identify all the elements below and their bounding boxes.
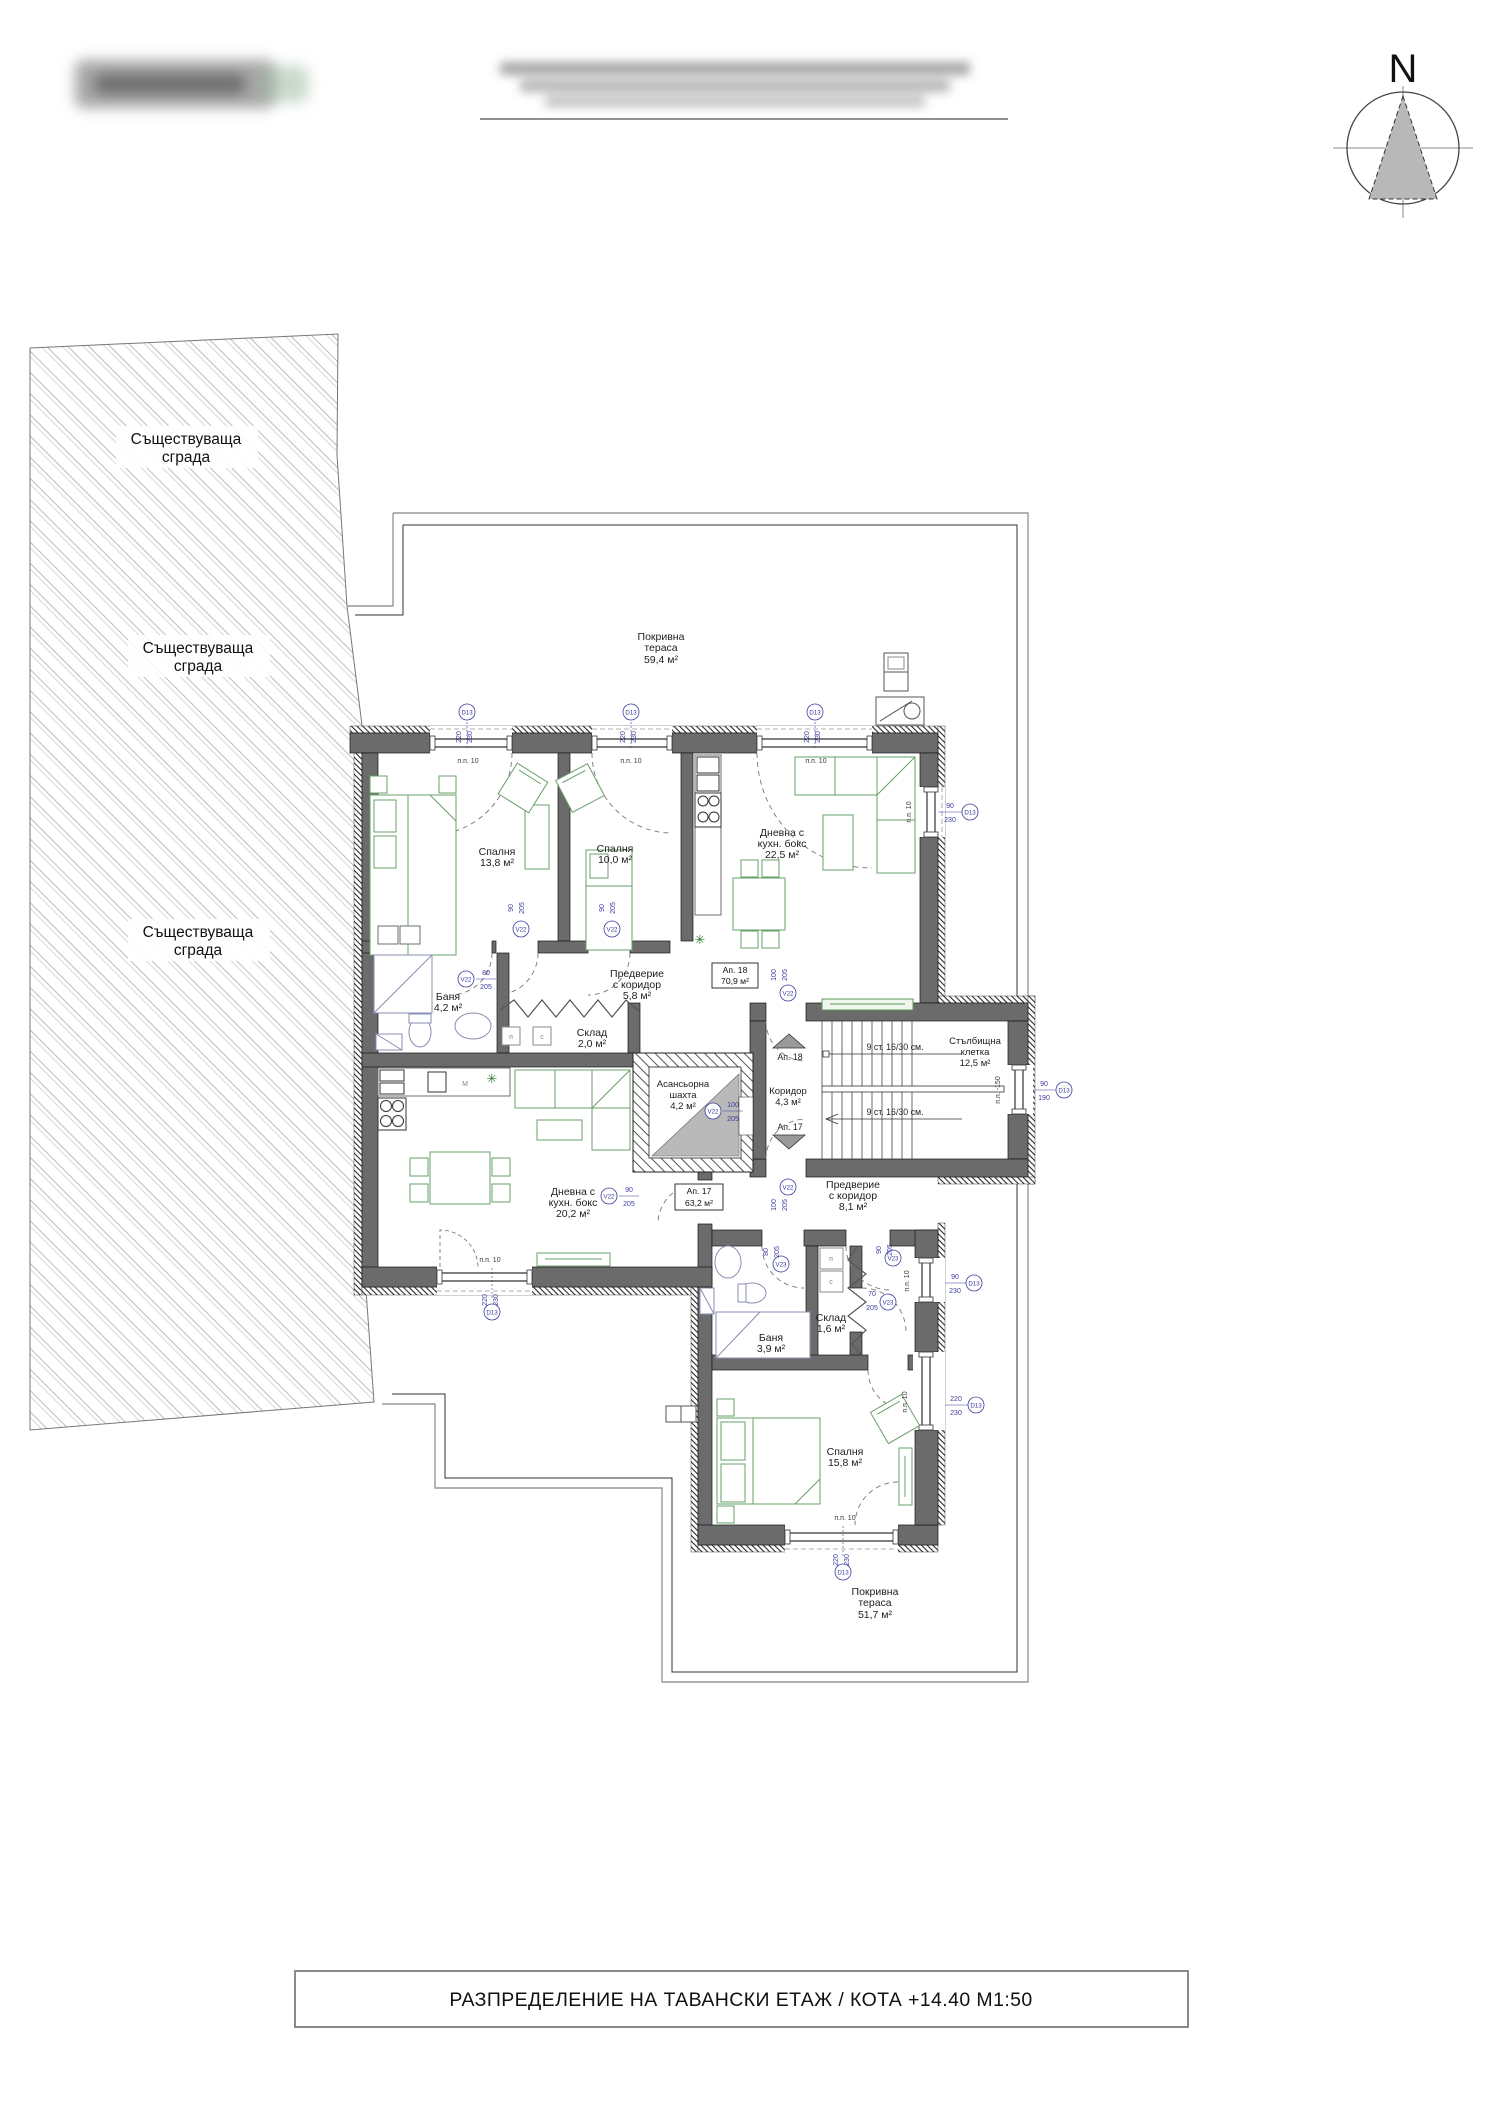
title-block: РАЗПРЕДЕЛЕНИЕ НА ТАВАНСКИ ЕТАЖ / КОТА +1… [295,1971,1188,2027]
label-hall-8-1: Предверие с коридор 8,1 м² [826,1179,880,1213]
kitchen-22-5 [695,755,721,915]
svg-text:100: 100 [771,969,778,981]
wardrobe-zigzag-5-8 [500,1000,640,1017]
stair-run-label-2: 9 ст. 16/30 см. [866,1107,923,1117]
svg-text:220: 220 [620,731,627,743]
svg-text:V22: V22 [460,977,472,984]
label-terrace-bottom: Покривна тераса 51,7 м² [852,1586,899,1621]
svg-text:90: 90 [1040,1081,1048,1088]
svg-text:D13: D13 [625,710,637,717]
svg-text:205: 205 [782,969,789,981]
svg-text:8,1 м²: 8,1 м² [839,1201,868,1213]
sheet-title: РАЗПРЕДЕЛЕНИЕ НА ТАВАНСКИ ЕТАЖ / КОТА +1… [449,1989,1032,2011]
svg-text:90: 90 [876,1246,883,1254]
washer-letter: п [509,1034,513,1041]
marker-door-storage-1-6: 70 205 V23 [866,1291,896,1312]
washer-letter-2: п [829,1256,833,1263]
svg-text:V23: V23 [775,1262,787,1269]
dryer-letter-2: с [829,1279,833,1286]
svg-text:Съществуваща: Съществуваща [143,924,254,941]
apartment-tag-ap18: Ап. 18 70,9 м² [712,963,758,988]
floor-plan-drawing: N Съществуваща сграда Съществуваща сград… [0,0,1500,2123]
svg-text:п.п. 10: п.п. 10 [457,758,478,765]
marker-door-bath-3-9: V23 80 205 [763,1246,789,1272]
svg-text:сграда: сграда [174,942,223,959]
elevator-shaft [633,1053,753,1172]
svg-text:205: 205 [610,902,617,914]
existing-building-label-1: Съществуваща сграда [116,426,258,468]
svg-text:клетка: клетка [961,1047,990,1058]
marker-door-bath-4-2: V22 80 205 [458,970,496,991]
svg-text:220: 220 [804,731,811,743]
label-storage-1-6: Склад 1,6 м² [816,1312,846,1335]
svg-text:51,7 м²: 51,7 м² [858,1609,893,1621]
svg-text:220: 220 [456,731,463,743]
microwave-letter: М [462,1081,468,1088]
svg-text:4,2 м²: 4,2 м² [670,1101,696,1112]
north-arrow-icon: N [1333,47,1473,218]
svg-text:4,3 м²: 4,3 м² [775,1097,801,1108]
coffee-table-22-5 [823,815,853,870]
svg-text:80: 80 [763,1248,770,1256]
svg-text:п.п. 10: п.п. 10 [904,1270,911,1291]
plant-icon-2: ✳ [487,1071,498,1086]
svg-text:22,5 м²: 22,5 м² [765,849,800,861]
svg-text:12,5 м²: 12,5 м² [960,1058,991,1069]
floor-plan-sheet: N Съществуваща сграда Съществуваща сград… [0,0,1500,2123]
svg-text:59,4 м²: 59,4 м² [644,654,679,666]
svg-text:п.п. -150: п.п. -150 [995,1076,1002,1104]
svg-text:п.п. 10: п.п. 10 [479,1257,500,1264]
svg-text:2,0 м²: 2,0 м² [578,1038,607,1050]
label-bath-4-2: Баня 4,2 м² [434,991,463,1014]
svg-text:п.п. 10: п.п. 10 [805,758,826,765]
window-bedroom-15-8 [785,1523,898,1554]
svg-text:сграда: сграда [174,658,223,675]
sink-3-9 [715,1246,741,1278]
svg-text:230: 230 [467,731,474,743]
armchair-15-8 [870,1394,919,1443]
bed-double-15-8 [717,1399,820,1523]
sink-4-2 [455,1013,491,1039]
label-bedroom-10-0: Спалня 10,0 м² [597,843,634,866]
label-hall-5-8: Предверие с коридор 5,8 м² [610,968,664,1002]
label-storage-2-0: Склад 2,0 м² [577,1027,607,1050]
marker-door-living-20-2: V22 90 205 [601,1187,639,1208]
svg-text:Коридор: Коридор [769,1086,807,1097]
svg-text:D13: D13 [970,1403,982,1410]
svg-text:20,2 м²: 20,2 м² [556,1208,591,1220]
svg-text:D13: D13 [461,710,473,717]
svg-text:Съществуваща: Съществуваща [131,431,242,448]
label-corridor: Коридор 4,3 м² [769,1086,807,1108]
svg-text:V22: V22 [782,1185,794,1192]
shower-4-2 [374,955,432,1013]
svg-text:тераса: тераса [644,642,677,654]
label-living-20-2: Дневна с кухн. бокс 20,2 м² [549,1186,598,1220]
blurred-address-block [500,62,970,107]
svg-text:Съществуваща: Съществуваща [143,640,254,657]
svg-text:D13: D13 [486,1310,498,1317]
svg-text:230: 230 [950,1410,962,1417]
svg-text:100: 100 [727,1102,739,1109]
existing-building-label-2: Съществуваща сграда [128,635,270,677]
toilet-3-9 [738,1283,766,1303]
svg-text:220: 220 [482,1294,489,1306]
svg-text:D13: D13 [837,1570,849,1577]
dining-table-22-5 [733,860,785,948]
svg-text:90: 90 [946,803,954,810]
svg-text:205: 205 [480,984,492,991]
desk-13-8 [525,805,549,869]
svg-text:205: 205 [887,1244,894,1256]
svg-text:230: 230 [815,731,822,743]
svg-text:205: 205 [519,902,526,914]
marker-door-entry-ap17: V22 100 205 [771,1179,796,1211]
svg-text:шахта: шахта [669,1090,697,1101]
svg-text:Асансьорна: Асансьорна [657,1079,710,1090]
label-bath-3-9: Баня 3,9 м² [757,1332,786,1355]
svg-text:100: 100 [771,1199,778,1211]
svg-text:205: 205 [866,1305,878,1312]
svg-text:V22: V22 [782,991,794,998]
label-living-22-5: Дневна с кухн. бокс 22,5 м² [758,827,807,861]
svg-text:D13: D13 [1058,1088,1070,1095]
svg-text:V22: V22 [603,1194,615,1201]
svg-text:1,6 м²: 1,6 м² [817,1323,846,1335]
svg-text:90: 90 [599,904,606,912]
label-bedroom-15-8: Спалня 15,8 м² [827,1446,864,1469]
svg-text:15,8 м²: 15,8 м² [828,1457,863,1469]
svg-text:V22: V22 [606,927,618,934]
svg-text:230: 230 [631,731,638,743]
svg-text:Стълбищна: Стълбищна [949,1036,1002,1047]
window-stairwell [1006,1065,1033,1114]
svg-text:220: 220 [833,1554,840,1566]
svg-text:70: 70 [868,1291,876,1298]
window-hall-8-1-side [913,1258,945,1302]
label-terrace-top: Покривна тераса 59,4 м² [638,631,685,666]
sofa-corner-22-5 [795,757,915,873]
existing-building-label-3: Съществуваща сграда [128,919,270,961]
stair-direction-up: Ап. 18 [773,1034,805,1062]
marker-window-w5: 90 190 D13 [1033,1081,1072,1102]
svg-text:90: 90 [951,1274,959,1281]
svg-text:4,2 м²: 4,2 м² [434,1002,463,1014]
marker-window-w6: 90 230 D13 [945,1274,982,1295]
svg-text:п.п. 10: п.п. 10 [834,1515,855,1522]
svg-text:D13: D13 [964,810,976,817]
north-letter: N [1389,47,1418,91]
svg-text:п.п. 10: п.п. 10 [902,1391,909,1412]
dryer-letter: с [540,1034,544,1041]
svg-text:70,9 м²: 70,9 м² [721,976,749,986]
svg-text:п.п. 10: п.п. 10 [906,801,913,822]
stair-run-label-1: 9 ст. 16/30 см. [866,1042,923,1052]
label-bedroom-13-8: Спалня 13,8 м² [479,846,516,869]
svg-text:3,9 м²: 3,9 м² [757,1343,786,1355]
stair-direction-down: Ап. 17 [773,1122,805,1149]
svg-text:Ап. 17: Ап. 17 [777,1122,802,1132]
svg-text:тераса: тераса [858,1597,891,1609]
svg-text:V23: V23 [882,1300,894,1307]
svg-text:п.п. 10: п.п. 10 [620,758,641,765]
svg-text:Ап. 18: Ап. 18 [723,965,748,975]
marker-window-w7: 220 230 D13 [945,1396,984,1417]
svg-text:63,2 м²: 63,2 м² [685,1198,713,1208]
marker-door-wing-hall: V23 90 205 [876,1244,901,1266]
marker-door-bedroom-13-8: V22 90 205 [508,902,529,937]
label-stairwell: Стълбищна клетка 12,5 м² [949,1036,1002,1069]
washer-3-9 [700,1288,714,1314]
svg-text:13,8 м²: 13,8 м² [480,857,515,869]
svg-text:205: 205 [782,1199,789,1211]
marker-door-entry-ap18: V22 100 205 [771,969,796,1001]
svg-text:10,0 м²: 10,0 м² [598,854,633,866]
window-living-20-2 [437,1264,532,1295]
svg-text:5,8 м²: 5,8 м² [623,990,652,1002]
svg-text:205: 205 [727,1116,739,1123]
svg-text:D13: D13 [968,1281,980,1288]
svg-text:80: 80 [482,970,490,977]
window-bedroom-15-8-side [913,1352,945,1430]
blurred-company-logo [75,60,308,108]
svg-text:V22: V22 [515,927,527,934]
svg-text:сграда: сграда [162,449,211,466]
sofa-corner-20-2 [515,1070,630,1150]
svg-text:D13: D13 [809,710,821,717]
apartment-tag-ap17: Ап. 17 63,2 м² [675,1184,723,1210]
svg-text:V22: V22 [707,1109,719,1116]
svg-text:90: 90 [625,1187,633,1194]
svg-text:90: 90 [508,904,515,912]
svg-text:220: 220 [950,1396,962,1403]
existing-building-area: Съществуваща сграда Съществуваща сграда … [30,334,374,1430]
dining-table-20-2 [410,1152,510,1204]
plant-icon-1: ✳ [695,932,706,947]
svg-text:205: 205 [774,1246,781,1258]
svg-text:190: 190 [1038,1095,1050,1102]
svg-text:205: 205 [623,1201,635,1208]
svg-text:230: 230 [944,817,956,824]
washer-4-2 [376,1034,402,1050]
svg-text:230: 230 [949,1288,961,1295]
svg-text:Ап. 17: Ап. 17 [687,1186,712,1196]
